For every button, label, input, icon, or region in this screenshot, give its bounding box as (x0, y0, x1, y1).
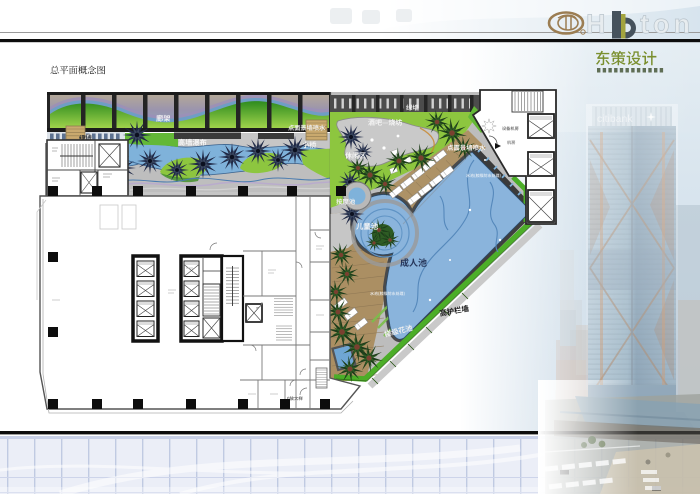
svg-text:ton: ton (640, 9, 694, 39)
svg-text:H: H (586, 9, 606, 39)
